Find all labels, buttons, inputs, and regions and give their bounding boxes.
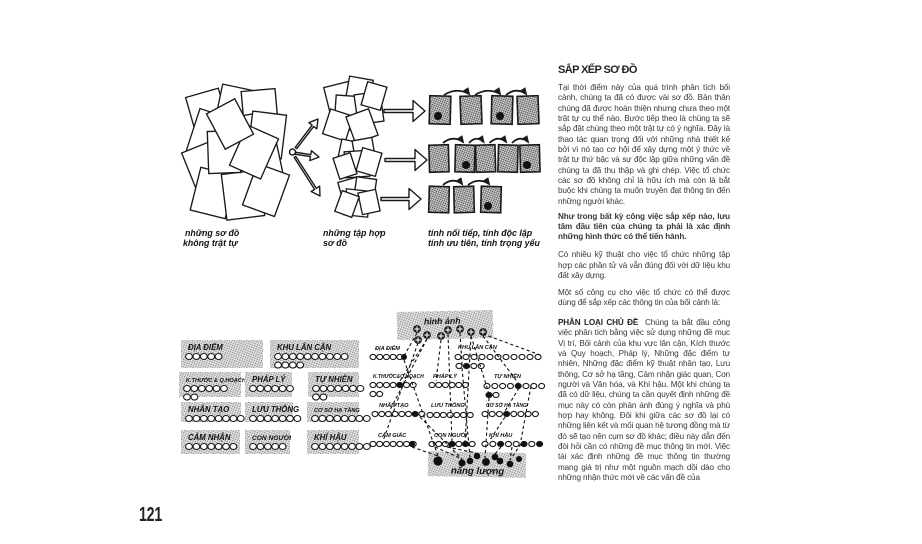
svg-text:CON NGƯỜI: CON NGƯỜI	[252, 433, 291, 442]
svg-text:KHÍ HẬU: KHÍ HẬU	[489, 432, 513, 439]
svg-text:K.THƯỚC & Q.HOẠCH: K.THƯỚC & Q.HOẠCH	[186, 376, 247, 384]
svg-text:TỰ NHIÊN: TỰ NHIÊN	[315, 375, 353, 384]
svg-text:KHU LÂN CẬN: KHU LÂN CẬN	[277, 343, 332, 352]
svg-text:LƯU THÔNG: LƯU THÔNG	[252, 405, 299, 414]
svg-text:tính nối tiếp, tính độc lập: tính nối tiếp, tính độc lập	[428, 228, 533, 238]
svg-text:PHÁP LÝ: PHÁP LÝ	[252, 375, 286, 384]
svg-text:KHÍ HẬU: KHÍ HẬU	[314, 433, 347, 442]
svg-text:những sơ đồ: những sơ đồ	[185, 228, 240, 238]
svg-text:NHÂN TẠO: NHÂN TẠO	[188, 405, 229, 414]
svg-text:tính ưu tiên, tính trọng yếu: tính ưu tiên, tính trọng yếu	[428, 238, 540, 248]
svg-text:những tập hợp: những tập hợp	[323, 228, 386, 238]
svg-text:ĐỊA ĐIỂM: ĐỊA ĐIỂM	[188, 343, 223, 352]
svg-text:sơ đồ: sơ đồ	[323, 238, 348, 248]
svg-text:không trật tự: không trật tự	[183, 238, 238, 248]
svg-text:CƠ SỞ HẠ TẦNG: CƠ SỞ HẠ TẦNG	[314, 407, 360, 414]
svg-text:hình ảnh: hình ảnh	[424, 316, 461, 327]
svg-text:LƯU THÔNG: LƯU THÔNG	[431, 401, 465, 409]
svg-text:K.THƯỚC&Q.HOẠCH: K.THƯỚC&Q.HOẠCH	[373, 372, 424, 380]
svg-text:TỰ NHIÊN: TỰ NHIÊN	[494, 372, 522, 380]
svg-text:CẢM NHẬN: CẢM NHẬN	[188, 433, 231, 442]
svg-text:CẢM GIÁC: CẢM GIÁC	[378, 432, 407, 439]
svg-text:năng lượng: năng lượng	[451, 466, 505, 478]
svg-text:CON NGƯỜI: CON NGƯỜI	[434, 431, 468, 439]
svg-text:ĐỊA ĐIỂM: ĐỊA ĐIỂM	[375, 345, 400, 352]
